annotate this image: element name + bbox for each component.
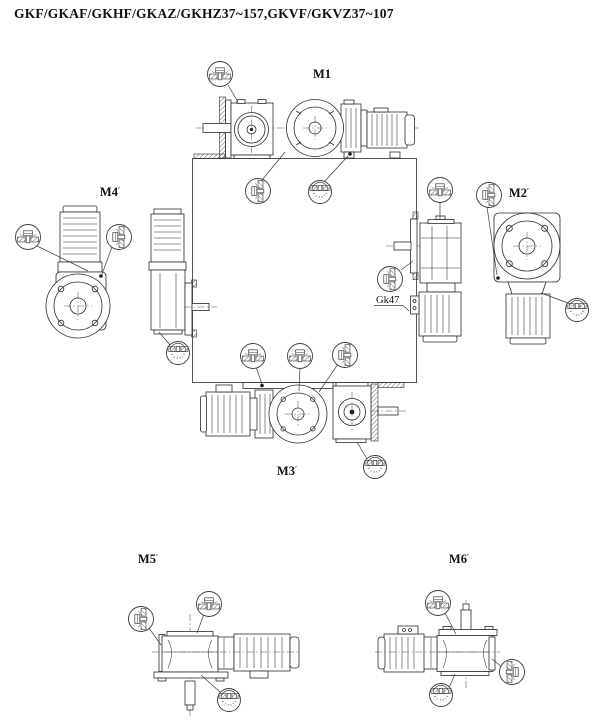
- m1-label: M1: [313, 67, 331, 81]
- m3-label: M3′: [277, 464, 297, 478]
- m5-label: M5′: [138, 552, 158, 566]
- m5-drain-plug-icon: [218, 689, 241, 712]
- m6-drain-plug-icon: [430, 684, 453, 707]
- m4-label: M4′: [100, 185, 120, 199]
- m4-level-plug-icon: [107, 225, 132, 250]
- gk47-label: Gk47: [376, 295, 399, 306]
- m3-side-view-unit: [333, 383, 406, 443]
- m2-drain-plug-icon: [566, 299, 589, 322]
- m3-front-view-unit: [201, 383, 334, 444]
- m5-vent-plug-icon: [197, 592, 222, 617]
- m3-drain-plug-icon: [364, 456, 387, 479]
- m2-front-view-unit: [494, 213, 560, 344]
- m2-assembly: [386, 212, 560, 344]
- m2-level-plug-icon: [477, 183, 502, 208]
- m4-assembly: [46, 206, 217, 338]
- m2-label: M2′: [509, 186, 529, 200]
- m2-vent-plug-icon: [428, 178, 453, 203]
- gk47-plug-icon: [378, 267, 403, 292]
- m5-level-plug-icon: [129, 607, 154, 632]
- m3-assembly: [201, 383, 407, 444]
- m1-vent-plug-icon: [208, 62, 233, 87]
- m1-side-view-unit: [194, 97, 273, 159]
- m4-vent-plug-icon: [16, 225, 41, 250]
- m1-drain-plug-icon: [309, 181, 332, 204]
- m1-level-plug-icon: [246, 179, 271, 204]
- m3-level-plug-icon: [288, 344, 313, 369]
- m4-front-view-unit: [46, 206, 110, 338]
- m3-vent-plug-icon: [241, 344, 266, 369]
- m4-drain-plug-icon: [167, 342, 190, 365]
- m6-vent-plug-icon: [426, 591, 451, 616]
- mounting-position-diagram: M1 M2′ M3′ M4′ M5′ M6′ Gk47: [0, 0, 600, 724]
- m3-side-plug-icon: [333, 343, 358, 368]
- m6-label: M6′: [449, 552, 469, 566]
- m1-assembly: [194, 97, 420, 159]
- mounting-position-page: GKF/GKAF/GKHF/GKAZ/GKHZ37~157,GKVF/GKVZ3…: [0, 0, 600, 724]
- m6-level-plug-icon: [500, 660, 525, 685]
- m4-side-view-unit: [149, 209, 217, 337]
- m1-front-view-unit: [287, 100, 415, 159]
